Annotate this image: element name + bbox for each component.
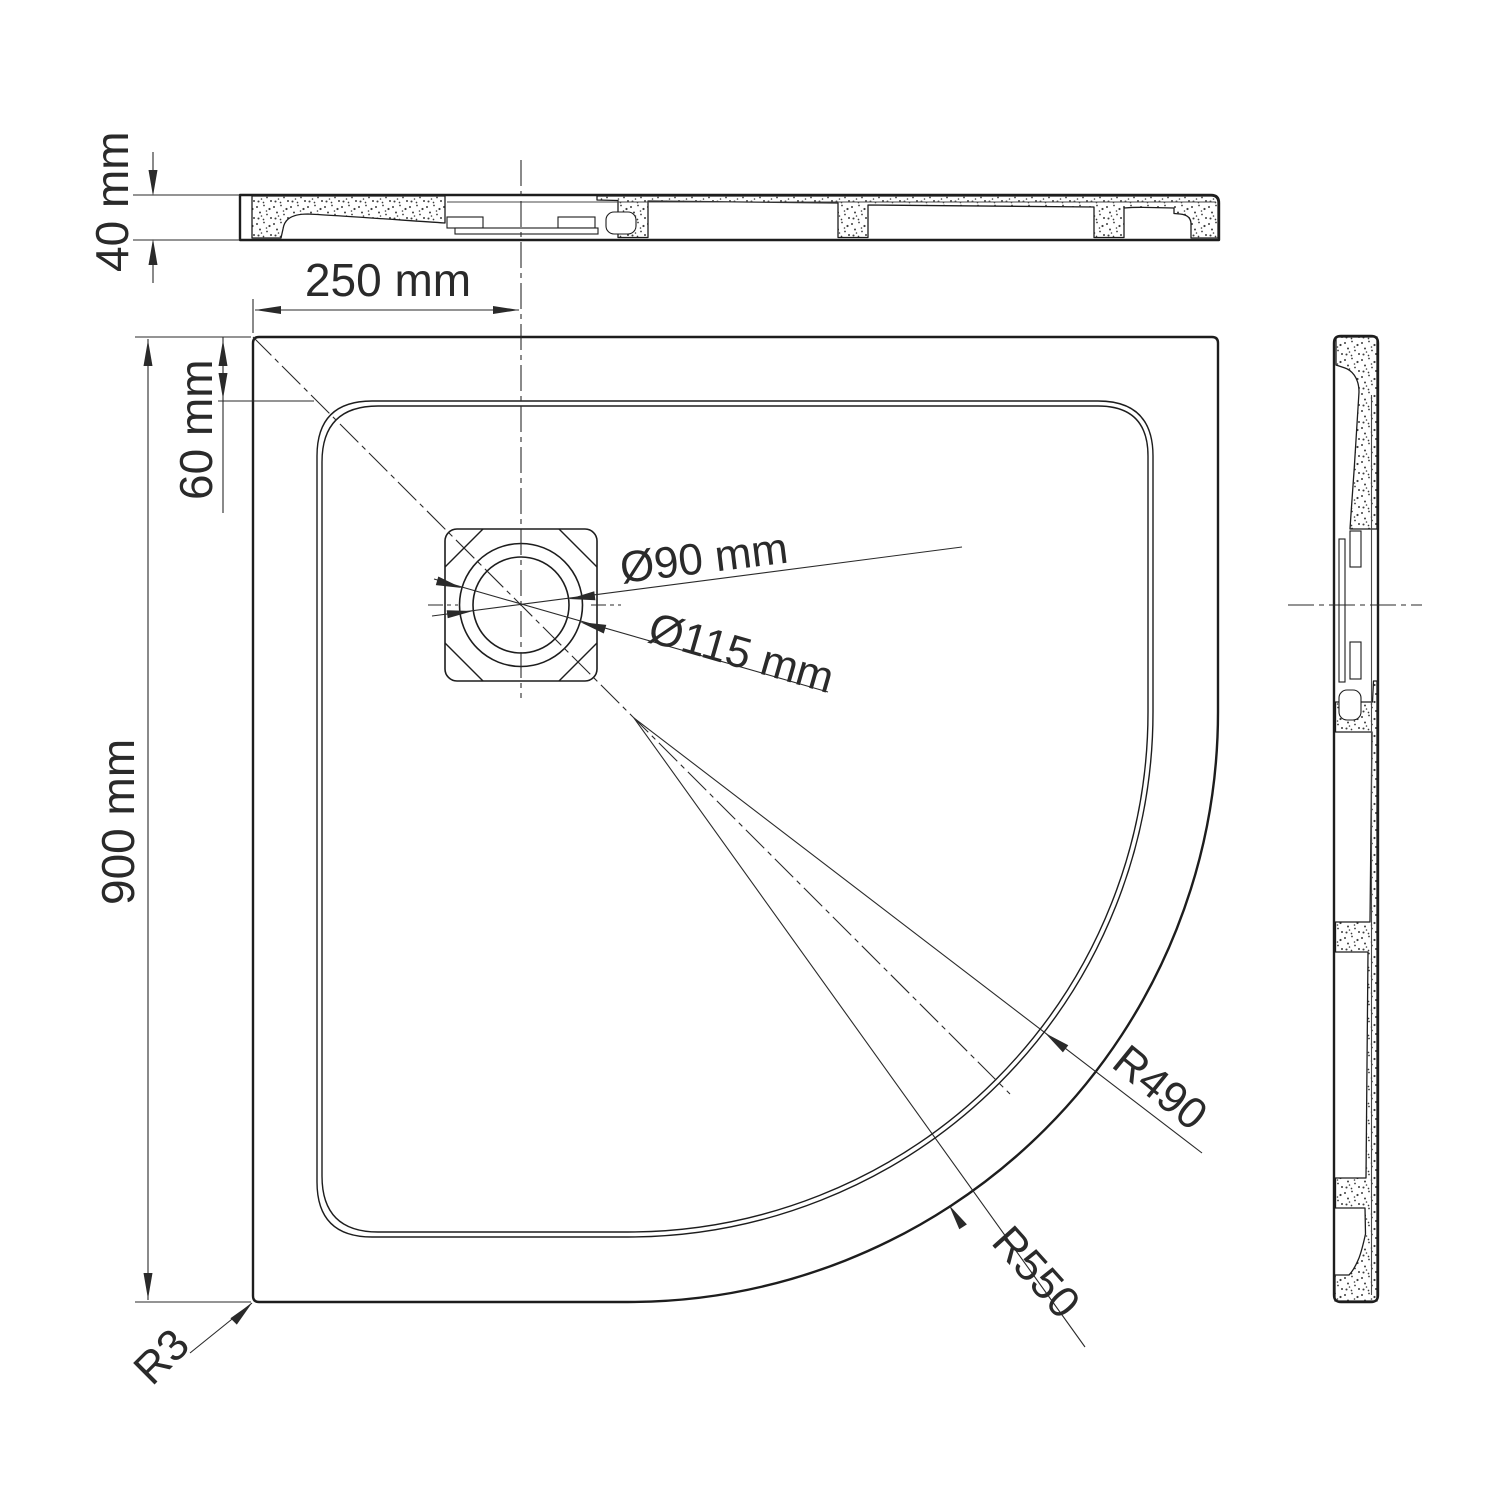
diagonal-centerline [253,337,1010,1094]
side-section-view [1288,336,1422,1302]
side-drain-flange-plate [1339,539,1345,682]
shower-tray-drawing: 40 mm 250 mm 60 mm 900 mm Ø90 mm Ø1 [0,0,1500,1500]
dim-edge-radius: R3 [124,1303,252,1394]
dim-edge-radius-label: R3 [124,1320,198,1394]
dim-overall-label: 900 mm [92,739,144,905]
plan-view [253,160,1218,1302]
dim-rim-width-label: 60 mm [170,359,222,500]
dim-thickness: 40 mm [86,131,240,283]
section-material-left [252,196,445,238]
cad-drawing-page: 40 mm 250 mm 60 mm 900 mm Ø90 mm Ø1 [0,0,1500,1500]
side-drain-flange-lower [1350,642,1361,679]
dim-inner-corner-radius: R490 [634,718,1216,1153]
tray-outer-edge [253,337,1218,1302]
dim-drain-offset-label: 250 mm [305,254,471,306]
drain-flange-upper-left [447,217,483,228]
dim-drain-inner-dia: Ø90 mm [432,524,962,618]
drain-flange-upper-right [558,217,595,228]
dim-outer-corner-radius-label: R550 [983,1217,1090,1328]
dim-drain-outer-dia: Ø115 mm [434,577,839,703]
dim-drain-offset: 250 mm [253,254,519,333]
dim-drain-outer-dia-label: Ø115 mm [643,604,839,703]
dim-rim-width: 60 mm [170,337,314,513]
side-material-bottom [1335,681,1377,1301]
section-rib-notch [606,212,636,234]
side-drain-flange-upper [1350,531,1361,567]
top-section-view [240,195,1219,240]
side-rib-notch [1339,690,1361,720]
dim-thickness-label: 40 mm [86,131,138,272]
dim-drain-inner-dia-label: Ø90 mm [617,524,790,593]
side-material-top [1336,337,1377,529]
drain-flange-lower [455,228,598,234]
dim-inner-corner-radius-label: R490 [1104,1036,1217,1140]
